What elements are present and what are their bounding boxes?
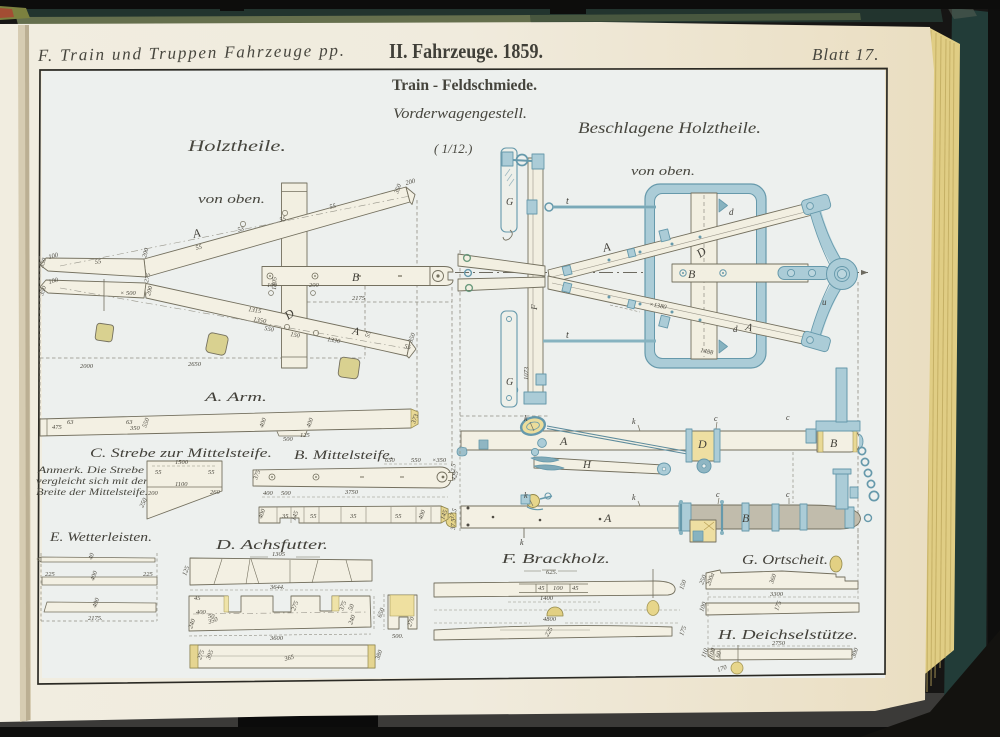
svg-text:B: B [688,267,696,281]
svg-text:500: 500 [283,436,294,443]
svg-text:3750: 3750 [344,489,359,496]
svg-text:3300: 3300 [769,591,784,598]
svg-text:von oben.: von oben. [198,191,265,206]
svg-text:A: A [559,434,568,448]
svg-text:3644.: 3644. [269,584,285,591]
svg-text:t: t [566,330,569,341]
svg-text:35: 35 [281,513,289,520]
svg-text:500: 500 [281,490,292,497]
svg-text:475: 475 [52,424,63,431]
svg-text:225: 225 [45,571,56,578]
svg-text:260: 260 [210,489,221,496]
svg-text:55: 55 [310,513,317,520]
svg-text:×350: ×350 [432,457,447,464]
svg-text:Holztheile.: Holztheile. [187,138,286,155]
svg-text:c: c [786,490,790,499]
svg-text:B: B [742,511,750,525]
svg-text:× 500: × 500 [120,290,137,297]
svg-text:125: 125 [300,432,311,439]
svg-text:k: k [520,538,524,547]
svg-text:E. Wetterleisten.: E. Wetterleisten. [49,529,152,544]
svg-text:2175.: 2175. [88,615,103,622]
svg-text:Breite der Mittelsteife.: Breite der Mittelsteife. [36,487,148,497]
svg-text:225: 225 [143,571,154,578]
svg-text:A. Arm.: A. Arm. [203,389,267,404]
svg-text:von oben.: von oben. [631,163,695,178]
svg-text:k: k [524,491,528,500]
svg-text:F. Brackholz.: F. Brackholz. [501,552,610,567]
svg-text:B: B [352,270,360,284]
svg-text:1500: 1500 [175,459,189,466]
svg-text:1100: 1100 [175,481,188,488]
svg-text:G: G [506,197,513,208]
svg-text:1073: 1073 [523,366,530,380]
svg-text:u: u [822,297,827,307]
svg-text:2000: 2000 [80,363,94,370]
svg-text:63: 63 [67,419,74,426]
svg-text:c: c [786,413,790,422]
svg-text:4800: 4800 [543,616,557,623]
svg-text:1305: 1305 [272,551,286,558]
svg-text:B: B [830,436,838,450]
svg-text:Beschlagene Holztheile.: Beschlagene Holztheile. [578,120,761,137]
svg-text:d: d [729,207,734,217]
svg-text:Anmerk. Die Strebe: Anmerk. Die Strebe [36,465,144,475]
svg-text:H: H [582,459,592,471]
svg-text:45: 45 [194,595,201,602]
svg-text:C. Strebe zur Mittelsteife.: C. Strebe zur Mittelsteife. [90,445,272,460]
svg-text:400: 400 [196,609,207,616]
svg-text:200: 200 [309,282,320,289]
svg-text:Blatt 17.: Blatt 17. [812,45,880,64]
svg-text:2175: 2175 [352,295,366,302]
svg-text:vergleicht sich mit der: vergleicht sich mit der [36,476,149,486]
svg-text:1400: 1400 [540,595,554,602]
svg-text:2750: 2750 [772,640,786,647]
svg-text:200: 200 [148,490,159,497]
svg-text:B. Mittelsteife.: B. Mittelsteife. [294,447,394,462]
svg-text:k: k [524,414,528,423]
svg-text:II. Fahrzeuge. 1859.: II. Fahrzeuge. 1859. [389,39,543,63]
svg-text:t: t [566,196,569,207]
svg-text:3600: 3600 [269,635,284,642]
svg-text:650: 650 [385,457,396,464]
svg-text:( 1/12.): ( 1/12.) [434,141,472,156]
svg-text:500.: 500. [392,633,404,640]
svg-text:350: 350 [129,425,141,432]
svg-text:100: 100 [267,282,278,289]
svg-text:35: 35 [349,513,357,520]
svg-text:550: 550 [411,457,422,464]
svg-text:c: c [714,414,718,423]
svg-text:G. Ortscheit.: G. Ortscheit. [742,553,828,568]
svg-text:55: 55 [208,469,215,476]
svg-text:45: 45 [538,585,545,592]
svg-text:k: k [632,417,636,426]
svg-text:55: 55 [155,469,162,476]
svg-text:c: c [716,490,720,499]
svg-text:Vorderwagengestell.: Vorderwagengestell. [393,106,527,122]
svg-text:100: 100 [553,585,564,592]
svg-text:G: G [506,377,513,388]
svg-text:55: 55 [395,513,402,520]
svg-text:A: A [603,511,612,525]
svg-text:45: 45 [572,585,579,592]
svg-text:d: d [733,324,738,334]
svg-text:H. Deichselstütze.: H. Deichselstütze. [717,628,858,643]
svg-text:k: k [632,493,636,502]
svg-text:2650: 2650 [188,361,202,368]
svg-text:Train - Feldschmiede.: Train - Feldschmiede. [392,77,537,94]
svg-text:400: 400 [263,490,274,497]
svg-text:D: D [697,437,707,451]
svg-text:F: F [529,304,539,311]
